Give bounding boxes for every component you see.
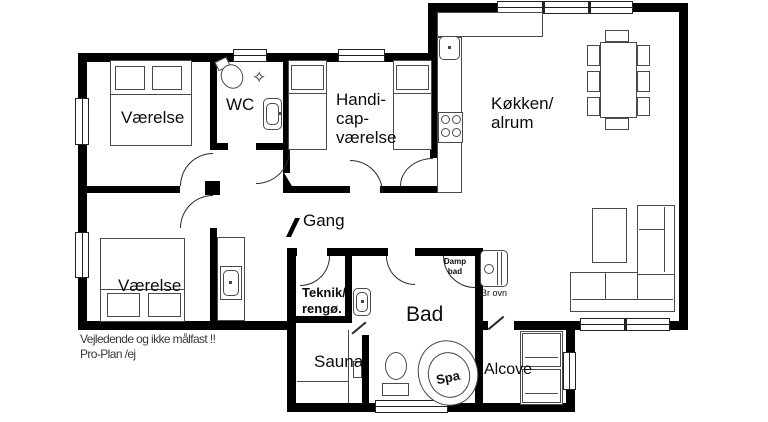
coffee-table xyxy=(592,208,627,263)
window xyxy=(75,98,89,145)
wall-handicap-bottom-left xyxy=(283,186,350,193)
room-label-handicap-1: Handi- xyxy=(336,90,386,110)
chair-icon xyxy=(637,45,650,66)
chair-icon xyxy=(637,97,650,116)
entrance-marker xyxy=(286,218,300,237)
wall-bedroom1-bottom xyxy=(78,186,180,193)
window xyxy=(233,49,267,62)
faucet-dot xyxy=(229,281,232,284)
sofa-line xyxy=(572,299,673,300)
faucet-dot xyxy=(361,300,364,303)
sofa-line xyxy=(639,229,664,230)
room-label-kitchen-2: alrum xyxy=(491,113,534,133)
burner-icon xyxy=(452,128,461,137)
door-arc-bedroom1 xyxy=(180,153,213,186)
bed-line xyxy=(525,393,558,394)
chair-icon xyxy=(587,97,600,116)
wall-annex-left xyxy=(287,252,296,412)
room-label-handicap-2: cap- xyxy=(336,109,369,129)
bed-line xyxy=(288,93,327,94)
door-arc-tech xyxy=(300,256,330,286)
room-label-alcove: Alcove xyxy=(484,361,532,379)
bed-line xyxy=(393,93,432,94)
bed-line xyxy=(110,94,192,95)
window xyxy=(75,232,89,278)
wall-handicap-bottom-right xyxy=(380,186,437,193)
door-arc-handicap xyxy=(350,160,383,193)
faucet-dot xyxy=(278,112,281,115)
footnote-line-2: Pro-Plan /ej xyxy=(80,347,136,361)
bed-line xyxy=(525,357,558,358)
pillow-icon xyxy=(107,293,140,317)
chair-icon xyxy=(605,30,629,42)
room-label-sauna: Sauna xyxy=(314,352,363,372)
wall-step xyxy=(428,3,437,62)
room-label-bedroom1: Værelse xyxy=(121,108,184,128)
wall-annex-top-2 xyxy=(327,248,388,256)
toilet-base-icon xyxy=(382,383,409,396)
burner-icon xyxy=(441,128,450,137)
pillow-icon xyxy=(396,65,429,90)
door-arc-bath xyxy=(386,256,415,285)
pillow-icon xyxy=(148,293,181,317)
wall-tech-bottom xyxy=(287,316,352,323)
room-label-handicap-3: værelse xyxy=(336,128,396,148)
sauna-bench-line xyxy=(297,381,348,382)
chair-icon xyxy=(587,71,600,92)
wall-right xyxy=(679,3,688,330)
floor-plan: ✧ xyxy=(0,0,768,422)
wall-bedroom1-right xyxy=(210,53,217,150)
wall-wc-bottom-left xyxy=(210,143,228,150)
door-arc-kitchen xyxy=(400,158,433,186)
room-label-tech-2: rengø. xyxy=(302,301,342,316)
room-label-wc: WC xyxy=(226,95,254,115)
wall-annex-top-1 xyxy=(287,248,297,256)
sofa-icon xyxy=(637,205,675,275)
footnote-line-1: Vejledende og ikke målfast !! xyxy=(80,332,215,346)
burner-icon xyxy=(452,115,461,124)
chair-icon xyxy=(637,71,650,92)
wood-stove-line xyxy=(497,252,498,285)
pillow-icon xyxy=(115,66,145,90)
wall-west-bottom xyxy=(78,321,295,330)
door-leaf-sauna xyxy=(351,321,366,334)
label-steam-bath-1: Damp xyxy=(438,257,472,266)
wall-bedroom2-right xyxy=(210,228,217,321)
door-leaf-alcove xyxy=(488,316,505,330)
room-label-hallway: Gang xyxy=(303,211,345,231)
dining-table xyxy=(600,42,637,118)
label-wood-stove: Br ovn xyxy=(481,288,507,298)
kitchen-counter-top xyxy=(437,12,543,37)
window xyxy=(563,352,576,390)
pillow-icon xyxy=(291,65,324,90)
sofa-line xyxy=(664,207,665,272)
burner-icon xyxy=(441,115,450,124)
room-label-kitchen-1: Køkken/ xyxy=(491,94,553,114)
door-arc-bedroom2 xyxy=(180,195,213,228)
window xyxy=(580,318,670,331)
wood-stove-dial xyxy=(484,264,494,274)
label-steam-bath-2: bad xyxy=(438,267,472,276)
room-label-tech-1: Teknik/ xyxy=(302,285,346,300)
wall-annex-top-3 xyxy=(415,248,475,256)
sofa-line xyxy=(637,273,638,299)
pillow-icon xyxy=(152,66,182,90)
faucet-dot xyxy=(448,46,451,49)
room-label-bath: Bad xyxy=(406,303,443,327)
room-label-bedroom2: Værelse xyxy=(118,276,181,296)
chair-icon xyxy=(587,45,600,66)
window xyxy=(338,49,385,62)
wood-stove-line xyxy=(501,252,502,285)
sofa-icon xyxy=(570,272,675,312)
chair-icon xyxy=(605,118,629,130)
toilet-bowl-icon xyxy=(385,352,407,380)
wall-wc-bottom-right xyxy=(256,143,283,150)
sparkle-icon: ✧ xyxy=(252,68,266,88)
wall-tech-right xyxy=(345,248,352,323)
sofa-line xyxy=(605,273,606,299)
